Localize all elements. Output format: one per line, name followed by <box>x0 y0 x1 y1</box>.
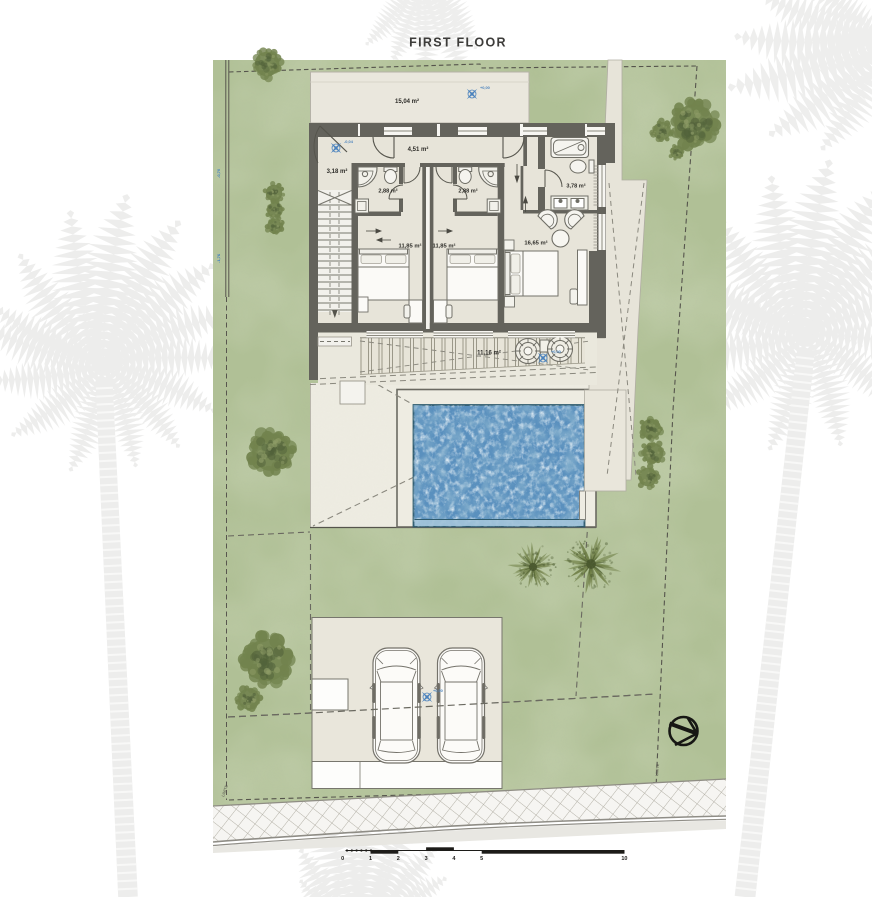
svg-text:3,78 m²: 3,78 m² <box>566 183 585 190</box>
svg-text:4,51 m²: 4,51 m² <box>408 146 429 153</box>
svg-text:5: 5 <box>480 856 483 862</box>
svg-text:2,88 m²: 2,88 m² <box>458 188 477 195</box>
svg-text:3,18 m²: 3,18 m² <box>327 168 348 175</box>
svg-text:11,16 m²: 11,16 m² <box>477 350 501 357</box>
svg-text:2,88 m²: 2,88 m² <box>378 188 397 195</box>
svg-text:-0,70: -0,70 <box>216 168 221 178</box>
svg-text:+0,00: +0,00 <box>433 688 443 693</box>
svg-text:-0,04: -0,04 <box>344 139 354 144</box>
svg-text:0: 0 <box>341 856 344 862</box>
svg-text:15,04 m²: 15,04 m² <box>395 98 419 105</box>
svg-text:-1,76: -1,76 <box>216 253 221 263</box>
svg-text:+0,00: +0,00 <box>480 85 490 90</box>
svg-text:1: 1 <box>369 856 372 862</box>
svg-text:2: 2 <box>397 856 400 862</box>
svg-text:11,85 m²: 11,85 m² <box>433 243 456 250</box>
svg-text:+0,00: +0,00 <box>551 349 561 354</box>
svg-text:3: 3 <box>425 856 428 862</box>
svg-text:FIRST FLOOR: FIRST FLOOR <box>409 36 507 50</box>
svg-text:10: 10 <box>621 856 627 862</box>
svg-text:16,65 m²: 16,65 m² <box>524 240 547 247</box>
svg-text:11,85 m²: 11,85 m² <box>399 243 422 250</box>
